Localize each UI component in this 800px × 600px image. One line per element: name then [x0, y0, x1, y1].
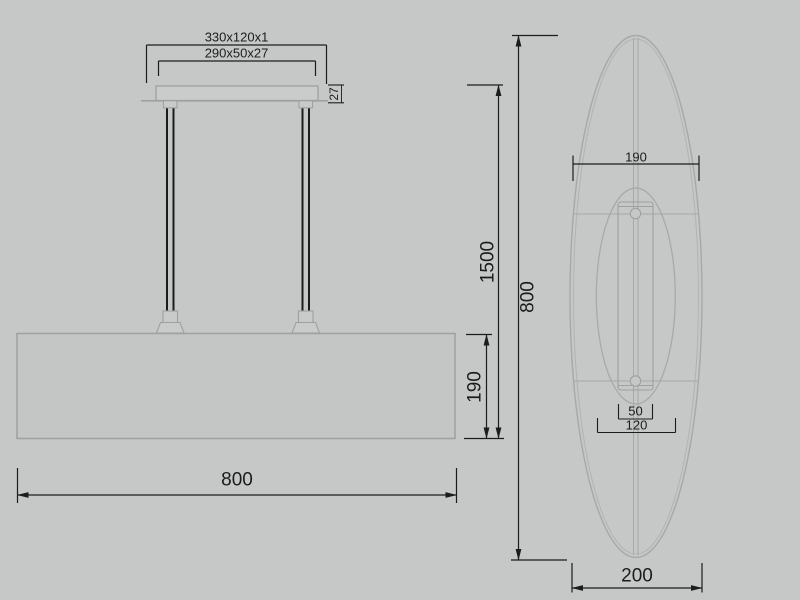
mounting-bracket — [618, 202, 653, 390]
canopy-dimension-lines — [159, 61, 316, 76]
shade-width-label: 800 — [221, 471, 253, 490]
bracket-screw-hole-top — [630, 208, 640, 218]
inner-opening — [596, 188, 675, 404]
shade-profile-outer — [570, 36, 702, 558]
front-view — [17, 45, 504, 503]
centre-stem — [634, 38, 639, 555]
shade-profile-inner — [574, 39, 699, 554]
shade-front — [17, 334, 455, 439]
plate-dimension-label: 330x120x1 — [205, 30, 269, 43]
canopy-box — [156, 86, 318, 101]
bracket-width-label: 50 — [628, 404, 642, 417]
upper-width-label: 190 — [625, 150, 647, 163]
drop-height-label: 1500 — [479, 241, 498, 283]
rod-top-fittings — [164, 101, 313, 108]
side-view — [511, 36, 702, 593]
shade-height-label: 190 — [465, 371, 484, 403]
drawing-canvas — [0, 0, 800, 600]
opening-width-label: 120 — [626, 419, 648, 432]
canopy-dimension-label: 290x50x27 — [205, 47, 269, 60]
overall-length-label: 800 — [518, 281, 537, 313]
bracket-screw-hole-bottom — [630, 376, 640, 386]
technical-drawing: 330x120x1 290x50x27 27 1500 190 800 800 … — [0, 0, 800, 600]
canopy-height-label: 27 — [328, 87, 340, 100]
shade-seam-lines — [574, 214, 698, 381]
rod-bottom-fittings — [157, 311, 320, 333]
suspension-rods — [167, 104, 309, 311]
depth-label: 200 — [621, 567, 653, 586]
